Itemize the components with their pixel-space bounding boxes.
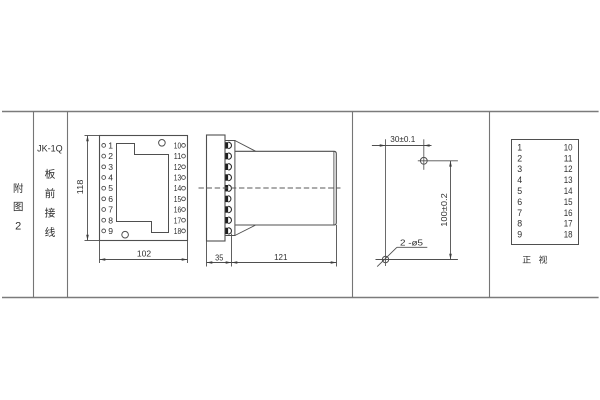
svg-text:8: 8 <box>517 219 522 229</box>
svg-text:9: 9 <box>108 226 113 236</box>
svg-text:11: 11 <box>564 153 573 163</box>
svg-text:2: 2 <box>517 153 522 163</box>
svg-text:4: 4 <box>517 175 522 185</box>
svg-text:7: 7 <box>108 205 113 215</box>
svg-text:2: 2 <box>108 151 113 161</box>
svg-text:15: 15 <box>174 194 182 204</box>
svg-text:9: 9 <box>517 230 522 240</box>
svg-text:1: 1 <box>108 141 113 151</box>
svg-text:15: 15 <box>564 197 573 207</box>
svg-text:JK-1Q: JK-1Q <box>37 144 63 154</box>
svg-text:14: 14 <box>564 186 573 196</box>
svg-text:6: 6 <box>517 197 522 207</box>
svg-text:13: 13 <box>564 175 573 185</box>
svg-text:10: 10 <box>564 142 573 152</box>
svg-text:16: 16 <box>174 205 182 215</box>
svg-text:30±0.1: 30±0.1 <box>390 135 415 144</box>
svg-text:16: 16 <box>564 208 573 218</box>
svg-text:18: 18 <box>564 230 573 240</box>
svg-text:3: 3 <box>517 164 522 174</box>
svg-text:102: 102 <box>137 248 151 258</box>
svg-text:2: 2 <box>15 220 21 232</box>
svg-text:13: 13 <box>174 173 182 183</box>
svg-text:12: 12 <box>564 164 573 174</box>
svg-text:10: 10 <box>174 141 182 151</box>
svg-text:18: 18 <box>174 226 182 236</box>
svg-text:17: 17 <box>564 219 573 229</box>
svg-text:5: 5 <box>108 183 113 193</box>
svg-text:6: 6 <box>108 194 113 204</box>
svg-text:121: 121 <box>274 252 288 262</box>
svg-text:8: 8 <box>108 215 113 225</box>
svg-text:1: 1 <box>517 142 522 152</box>
svg-text:17: 17 <box>174 215 182 225</box>
svg-text:11: 11 <box>174 151 182 161</box>
svg-text:12: 12 <box>174 162 182 172</box>
svg-text:3: 3 <box>108 162 113 172</box>
svg-text:5: 5 <box>517 186 522 196</box>
svg-text:4: 4 <box>108 173 113 183</box>
svg-text:7: 7 <box>517 208 522 218</box>
svg-text:14: 14 <box>174 183 182 193</box>
svg-text:2 -ø5: 2 -ø5 <box>400 238 423 248</box>
svg-text:118: 118 <box>75 179 85 194</box>
svg-text:100±0.2: 100±0.2 <box>440 193 449 227</box>
svg-text:35: 35 <box>215 252 223 262</box>
